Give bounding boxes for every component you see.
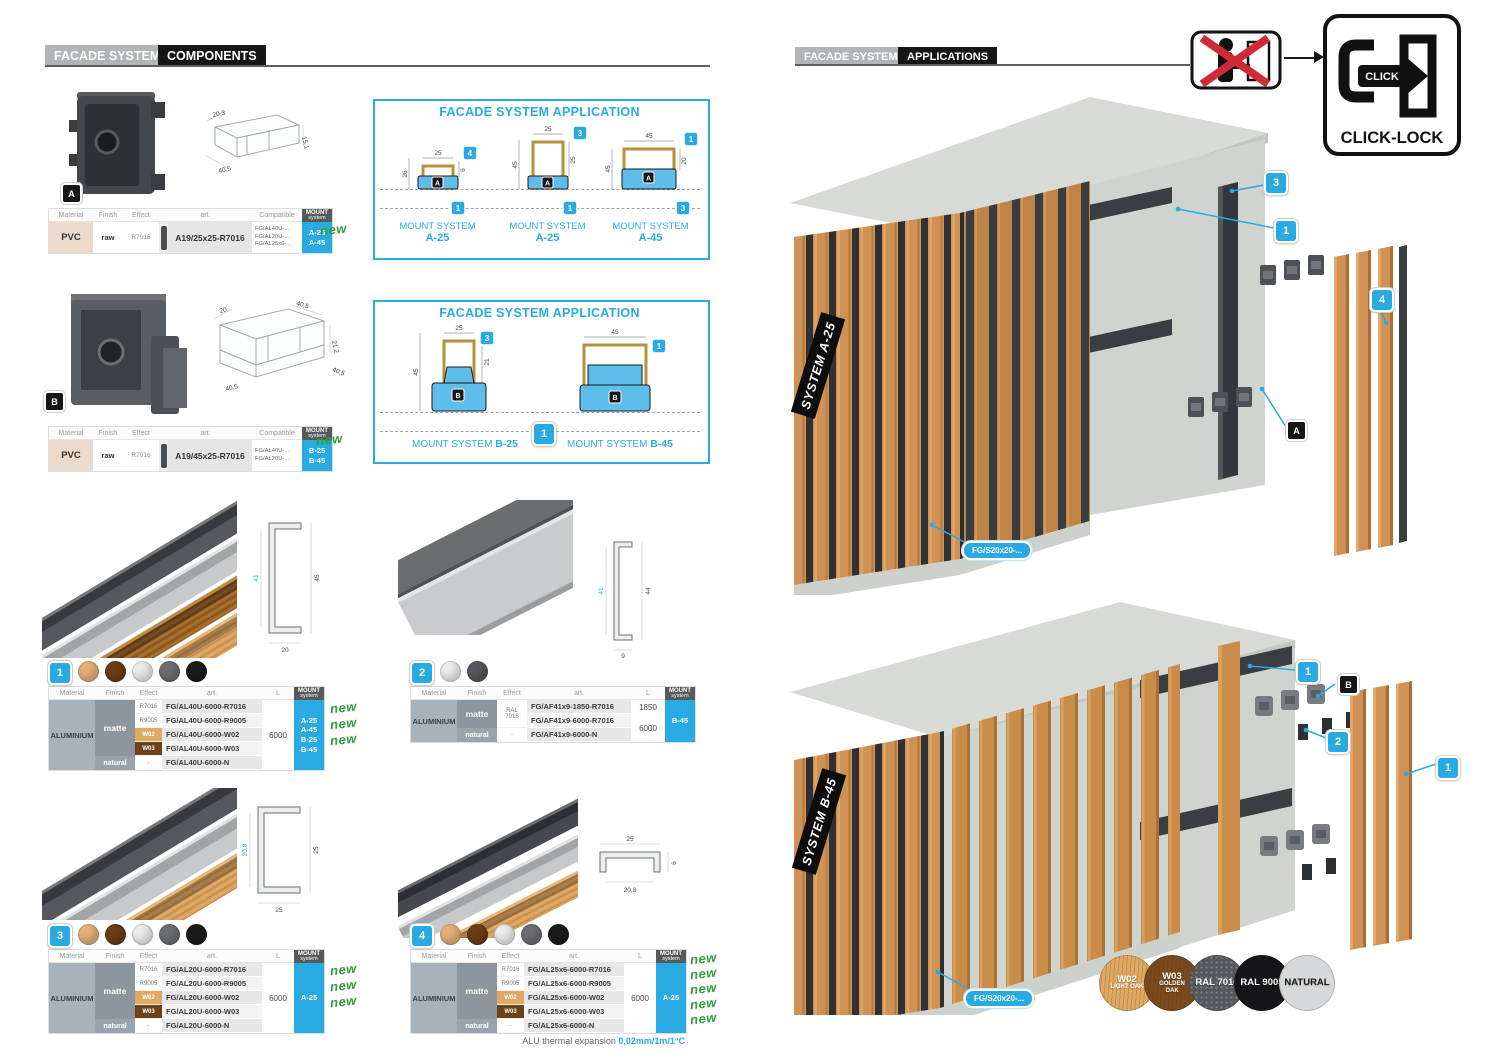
svg-text:25: 25 xyxy=(275,907,283,914)
part-badge-4: 4 xyxy=(1370,288,1394,312)
component-a-badge: A xyxy=(61,183,82,204)
part-badge-1: 1 xyxy=(1274,219,1298,243)
svg-text:21,2: 21,2 xyxy=(330,340,340,354)
finish-matte: matte xyxy=(95,700,135,756)
finish-natural: natural xyxy=(457,1019,497,1033)
col-effect: Effect xyxy=(497,687,527,700)
mount-systems: A-25 xyxy=(656,963,686,1033)
part-badge-b: B xyxy=(1338,674,1359,695)
part-badge-3: 3 xyxy=(1264,171,1288,195)
col-compatible: Compatible xyxy=(252,209,302,222)
art: FG/AL40U-6000-N xyxy=(162,756,262,770)
art: FG/AF41x9-6000-R7016 xyxy=(527,714,631,728)
svg-text:6: 6 xyxy=(460,168,467,172)
material-value: PVC xyxy=(49,440,93,471)
finish-natural: natural xyxy=(457,728,497,742)
effect: R9005 xyxy=(135,714,162,728)
arrow-line xyxy=(1284,57,1318,59)
col-material: Material xyxy=(411,950,457,963)
part-code-pill: FG/S20x20-... xyxy=(964,989,1034,1008)
col-material: Material xyxy=(49,427,93,440)
finish-matte: matte xyxy=(457,963,497,1019)
svg-text:3: 3 xyxy=(681,204,686,213)
thermal-expansion-note: ALU thermal expansion 0,02mm/1m/1°C xyxy=(420,1036,685,1046)
new-flag: new xyxy=(319,221,347,239)
art-value: A19/25x25-R7016 xyxy=(168,222,252,253)
mount-systems: A-25 xyxy=(294,963,324,1033)
clip-row-1 xyxy=(1260,255,1324,285)
finish-dot xyxy=(105,924,126,945)
caption-mount-a25-2: MOUNT SYSTEMA-25 xyxy=(495,221,600,244)
caption-mount-b25: MOUNT SYSTEM B-25 xyxy=(390,438,540,450)
new-flag: new xyxy=(329,715,357,733)
finish-matte: matte xyxy=(457,700,497,728)
col-compatible: Compatible xyxy=(252,427,302,440)
render-system-b45 xyxy=(790,600,1490,1015)
svg-text:CLICK: CLICK xyxy=(1365,71,1399,83)
effect: - xyxy=(135,1019,162,1033)
col-material: Material xyxy=(411,687,457,700)
col-effect: Effect xyxy=(123,209,159,222)
finish-value: raw xyxy=(93,222,123,253)
finish-natural: natural xyxy=(95,756,135,770)
length: 6000 xyxy=(624,963,656,1033)
art: FG/AL20U-6000-W03 xyxy=(162,1005,262,1019)
svg-text:41: 41 xyxy=(598,587,605,595)
length: 6000 xyxy=(631,714,665,742)
length: 6000 xyxy=(262,963,294,1033)
component-b-photo xyxy=(55,290,200,430)
col-mount-system: MOUNTsystem xyxy=(656,950,686,963)
svg-text:9: 9 xyxy=(621,653,625,660)
no-drilling-icon xyxy=(1190,30,1282,90)
effect: R7016 xyxy=(135,700,162,714)
component-b-dimension-drawing: 20 40,5 21,2 40,5 40,5 xyxy=(192,295,360,403)
effect: W02 xyxy=(135,728,162,742)
col-finish: Finish xyxy=(93,427,123,440)
finish-dot xyxy=(467,661,488,682)
right-header-rule xyxy=(795,64,1190,66)
svg-text:20: 20 xyxy=(281,647,289,654)
art: FG/AL25x6-6000-N xyxy=(524,1019,624,1033)
svg-text:45: 45 xyxy=(314,574,321,582)
length: 6000 xyxy=(262,700,294,770)
component-b-table: Material Finish Effect art. Compatible M… xyxy=(48,426,333,472)
svg-text:40,5: 40,5 xyxy=(218,165,232,175)
svg-text:15,1: 15,1 xyxy=(300,136,310,150)
profile-4-cross-section: 25 6 20,8 xyxy=(580,822,680,910)
finish-dot xyxy=(159,924,180,945)
col-material: Material xyxy=(49,209,93,222)
svg-text:45: 45 xyxy=(645,133,653,140)
finish-dot xyxy=(186,661,207,682)
col-finish: Finish xyxy=(95,687,135,700)
part-badge-a: A xyxy=(1286,420,1307,441)
art: FG/AL25x6-6000-W03 xyxy=(524,1005,624,1019)
render-system-a25 xyxy=(790,85,1490,595)
art: FG/AL20U-6000-R9005 xyxy=(162,977,262,991)
profile-2-photo xyxy=(398,500,573,635)
col-finish: Finish xyxy=(457,950,497,963)
new-flag: new xyxy=(689,1010,717,1028)
col-finish: Finish xyxy=(457,687,497,700)
svg-text:3: 3 xyxy=(485,334,490,343)
new-flag: new xyxy=(329,731,357,749)
mount-systems: A-25A-45B-25B-45 xyxy=(294,700,324,770)
material-value: ALUMINIUM xyxy=(411,963,457,1033)
svg-text:1: 1 xyxy=(689,135,694,144)
svg-text:25: 25 xyxy=(570,156,577,164)
col-mount-system: MOUNTsystem xyxy=(302,209,332,222)
swatch-natural: NATURAL xyxy=(1279,955,1335,1011)
effect: R9005 xyxy=(135,977,162,991)
application-a-title: FACADE SYSTEM APPLICATION xyxy=(373,105,706,119)
finish-dot xyxy=(440,661,461,682)
art-value: A19/45x25-R7016 xyxy=(168,440,252,471)
col-art: art. xyxy=(524,950,624,963)
svg-text:A: A xyxy=(435,181,440,188)
col-length: L xyxy=(631,687,665,700)
material-value: PVC xyxy=(49,222,93,253)
col-effect: Effect xyxy=(123,427,159,440)
col-finish: Finish xyxy=(93,209,123,222)
finish-value: raw xyxy=(93,440,123,471)
profile-2-cross-section: 41 44 9 xyxy=(588,532,658,660)
svg-text:40,5: 40,5 xyxy=(331,366,346,377)
svg-text:45: 45 xyxy=(605,165,612,173)
caption-mount-a45: MOUNT SYSTEMA-45 xyxy=(598,221,703,244)
effect: - xyxy=(497,1019,524,1033)
art: FG/AL20U-6000-R7016 xyxy=(162,963,262,977)
effect: RAL7016 xyxy=(497,700,527,728)
left-header-rule xyxy=(45,65,710,67)
svg-text:25: 25 xyxy=(544,126,552,133)
finish-dot xyxy=(440,924,461,945)
col-art: art. xyxy=(159,209,252,222)
col-art: art. xyxy=(527,687,631,700)
effect: - xyxy=(135,756,162,770)
svg-text:B: B xyxy=(612,395,617,402)
svg-text:A: A xyxy=(545,181,550,188)
profile-1-number: 1 xyxy=(48,661,72,685)
profile-1-photo xyxy=(42,500,237,658)
profile-4-number: 4 xyxy=(410,924,434,948)
effect-value: R7016 xyxy=(123,440,159,471)
part-thumbnail xyxy=(159,222,168,253)
svg-text:4: 4 xyxy=(468,149,473,158)
profile-3-photo xyxy=(42,788,237,920)
new-flag: new xyxy=(329,977,357,995)
finish-matte: matte xyxy=(95,963,135,1019)
svg-text:A: A xyxy=(646,176,651,183)
shared-wall-badge: 1 xyxy=(532,422,556,446)
effect: R9005 xyxy=(497,977,524,991)
finish-dot xyxy=(186,924,207,945)
svg-text:6: 6 xyxy=(671,861,678,865)
component-a-table: Material Finish Effect art. Compatible M… xyxy=(48,208,333,254)
art: FG/AL20U-6000-N xyxy=(162,1019,262,1033)
svg-text:1: 1 xyxy=(568,204,573,213)
profile-4-table: Material Finish Effect art. L MOUNTsyste… xyxy=(410,949,687,1034)
col-material: Material xyxy=(49,950,95,963)
finish-dot xyxy=(159,661,180,682)
svg-text:45: 45 xyxy=(413,368,420,376)
col-mount-system: MOUNTsystem xyxy=(665,687,695,700)
svg-text:20,3: 20,3 xyxy=(212,110,226,119)
svg-text:20: 20 xyxy=(681,157,688,165)
svg-text:25: 25 xyxy=(626,836,634,843)
part-code-pill: FG/S20x20-... xyxy=(962,541,1032,560)
svg-text:20,8: 20,8 xyxy=(624,887,637,894)
effect: W02 xyxy=(497,991,524,1005)
compatible-values: FG/AL40U-...FG/AL20U-... xyxy=(252,440,302,471)
mount-diagram-a25-tall: A 25 45 25 3 1 xyxy=(495,120,600,220)
svg-text:41: 41 xyxy=(253,574,260,582)
profile-1-table: Material Finish Effect art. L MOUNTsyste… xyxy=(48,686,325,771)
part-badge-1: 1 xyxy=(1296,660,1320,684)
new-flag: new xyxy=(329,961,357,979)
effect: W03 xyxy=(497,1005,524,1019)
col-length: L xyxy=(262,950,294,963)
col-finish: Finish xyxy=(95,950,135,963)
finish-dot xyxy=(494,924,515,945)
finish-dot xyxy=(548,924,569,945)
new-flag: new xyxy=(315,431,343,449)
col-length: L xyxy=(624,950,656,963)
part-badge-1-slats: 1 xyxy=(1436,756,1460,780)
art: FG/AF41x9-1850-R7016 xyxy=(527,700,631,714)
component-b-badge: B xyxy=(44,391,65,412)
col-effect: Effect xyxy=(497,950,524,963)
effect: R7016 xyxy=(497,963,524,977)
svg-text:40,5: 40,5 xyxy=(295,300,309,310)
effect: W03 xyxy=(135,742,162,756)
col-effect: Effect xyxy=(135,950,162,963)
art: FG/AL40U-6000-W03 xyxy=(162,742,262,756)
compatible-values: FG/AL40U-...FG/AL20U-...FG/AL25x6-... xyxy=(252,222,302,253)
profile-4-photo xyxy=(398,788,578,938)
svg-text:25: 25 xyxy=(455,325,463,332)
svg-text:1: 1 xyxy=(657,342,662,351)
mount-diagram-a45: A 45 45 20 1 3 xyxy=(598,120,703,220)
svg-text:26: 26 xyxy=(402,170,409,178)
finish-dot xyxy=(521,924,542,945)
effect: - xyxy=(497,728,527,742)
col-effect: Effect xyxy=(135,687,162,700)
finish-natural: natural xyxy=(95,1019,135,1033)
mount-systems: B-45 xyxy=(665,700,695,742)
profile-3-cross-section: 20,8 25 25 xyxy=(238,795,320,917)
art: FG/AL40U-6000-R7016 xyxy=(162,700,262,714)
art: FG/AL25x6-6000-W02 xyxy=(524,991,624,1005)
caption-mount-b45: MOUNT SYSTEM B-45 xyxy=(545,438,695,450)
art: FG/AL40U-6000-W02 xyxy=(162,728,262,742)
part-thumbnail xyxy=(159,440,168,471)
col-art: art. xyxy=(159,427,252,440)
finish-dot xyxy=(467,924,488,945)
new-flag: new xyxy=(329,699,357,717)
svg-text:20,8: 20,8 xyxy=(242,843,249,856)
svg-text:20: 20 xyxy=(219,307,228,315)
profile-2-number: 2 xyxy=(410,661,434,685)
finish-dot xyxy=(78,661,99,682)
effect: W03 xyxy=(135,1005,162,1019)
effect: R7016 xyxy=(135,963,162,977)
col-mount-system: MOUNTsystem xyxy=(294,950,324,963)
svg-text:B: B xyxy=(455,393,460,400)
art: FG/AL40U-6000-R9005 xyxy=(162,714,262,728)
new-flag: new xyxy=(329,993,357,1011)
mount-diagram-b25: B 25 45 21 3 xyxy=(400,315,520,435)
profile-2-table: Material Finish Effect art. L MOUNTsyste… xyxy=(410,686,696,743)
art: FG/AL20U-6000-W02 xyxy=(162,991,262,1005)
svg-text:3: 3 xyxy=(578,129,583,138)
catalog-page: FACADE SYSTEM COMPONENTS A 20,3 40,5 15,… xyxy=(0,0,1500,1061)
art: FG/AL25x6-6000-R7016 xyxy=(524,963,624,977)
part-badge-2: 2 xyxy=(1326,730,1350,754)
art: FG/AL25x6-6000-R9005 xyxy=(524,977,624,991)
col-art: art. xyxy=(162,950,262,963)
material-value: ALUMINIUM xyxy=(49,963,95,1033)
svg-text:25: 25 xyxy=(313,846,320,854)
profile-3-table: Material Finish Effect art. L MOUNTsyste… xyxy=(48,949,325,1034)
col-material: Material xyxy=(49,687,95,700)
finish-dot xyxy=(132,924,153,945)
svg-text:21: 21 xyxy=(484,358,491,366)
material-value: ALUMINIUM xyxy=(411,700,457,742)
finish-dot xyxy=(105,661,126,682)
svg-text:44: 44 xyxy=(645,587,652,595)
finish-dot xyxy=(132,661,153,682)
material-value: ALUMINIUM xyxy=(49,700,95,770)
caption-mount-a25: MOUNT SYSTEMA-25 xyxy=(385,221,490,244)
col-art: art. xyxy=(162,687,262,700)
svg-text:45: 45 xyxy=(611,329,619,336)
loose-slats xyxy=(1350,681,1412,950)
mount-diagram-b45: B 45 1 xyxy=(550,315,680,435)
left-header-brand: FACADE SYSTEM xyxy=(45,45,169,66)
effect-value: R7016 xyxy=(123,222,159,253)
art: FG/AF41x9-6000-N xyxy=(527,728,631,742)
left-header-tab: COMPONENTS xyxy=(158,45,266,66)
effect: W02 xyxy=(135,991,162,1005)
svg-text:45: 45 xyxy=(512,161,519,169)
profile-1-cross-section: 41 45 20 xyxy=(245,515,323,655)
finish-dot xyxy=(78,924,99,945)
profile-3-number: 3 xyxy=(48,924,72,948)
svg-text:1: 1 xyxy=(456,204,461,213)
col-length: L xyxy=(262,687,294,700)
length: 1850 xyxy=(631,700,665,714)
svg-text:25: 25 xyxy=(434,150,442,157)
col-mount-system: MOUNTsystem xyxy=(294,687,324,700)
svg-text:40,5: 40,5 xyxy=(225,383,239,393)
component-a-dimension-drawing: 20,3 40,5 15,1 xyxy=(185,103,313,183)
mount-diagram-a25-small: A 25 26 6 4 1 xyxy=(385,120,490,220)
